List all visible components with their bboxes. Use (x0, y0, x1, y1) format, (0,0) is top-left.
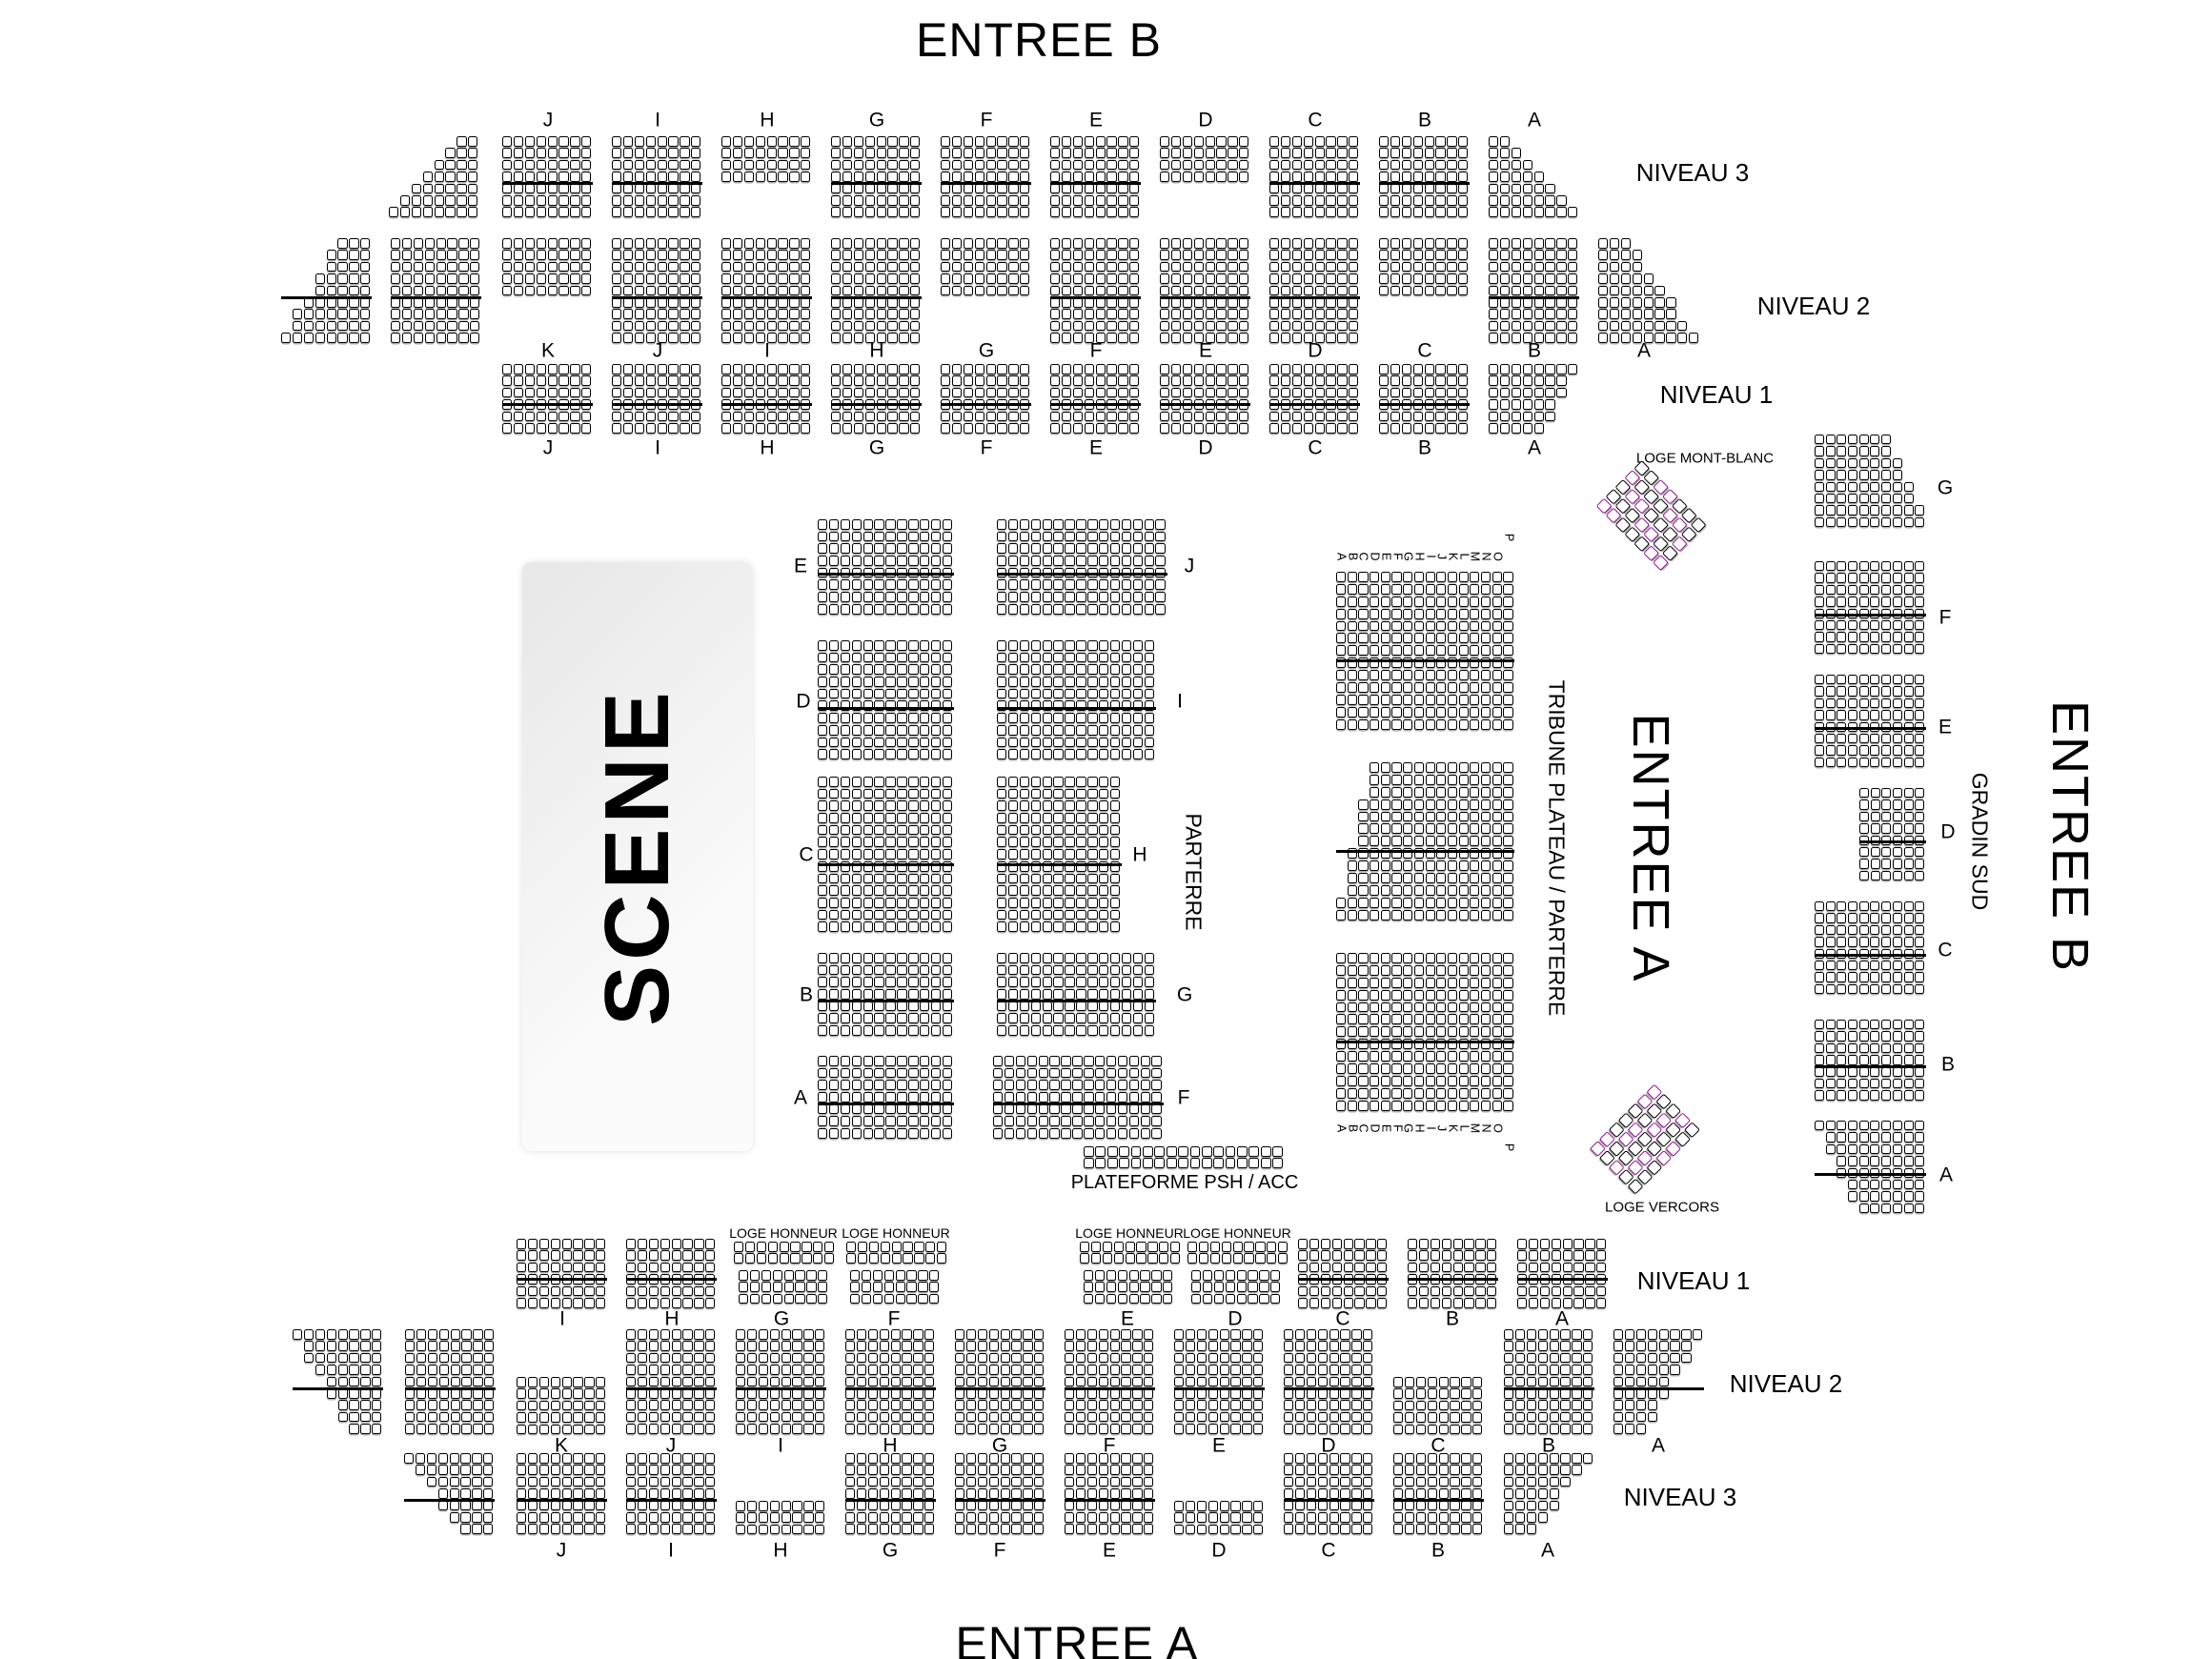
seat (1826, 1144, 1836, 1154)
seat (1065, 953, 1074, 963)
seat (877, 172, 886, 182)
seat (1426, 572, 1435, 582)
seat (1837, 1043, 1846, 1053)
seat (1556, 297, 1566, 308)
seat (721, 388, 731, 398)
seat (1870, 1079, 1879, 1088)
seat (1118, 195, 1127, 206)
seat (570, 172, 579, 182)
seat (581, 375, 591, 386)
seat-block-niveau1-bottom-D (1191, 1270, 1282, 1305)
seat (1654, 286, 1664, 296)
seat (1315, 321, 1325, 332)
seat (1248, 1158, 1259, 1168)
seat (1122, 738, 1131, 748)
seat (1133, 738, 1143, 748)
seat (784, 1294, 794, 1305)
seat (646, 412, 656, 422)
seat (1654, 333, 1664, 343)
seat (1336, 1014, 1346, 1024)
seat (778, 375, 787, 386)
seat (1337, 262, 1347, 273)
seat (1370, 873, 1379, 883)
seat (1106, 172, 1116, 182)
seat (1053, 965, 1063, 976)
seat (502, 273, 512, 284)
seat (1106, 333, 1116, 343)
seat (1194, 160, 1204, 171)
seat (1321, 1250, 1330, 1261)
seat (425, 250, 435, 260)
seat (612, 250, 621, 260)
seat (423, 207, 433, 217)
seat (1391, 584, 1401, 595)
seat (1904, 1156, 1914, 1165)
seat (1031, 825, 1041, 836)
seat (1512, 184, 1521, 194)
seat (1053, 921, 1063, 932)
seat (473, 1341, 482, 1351)
seat (1523, 412, 1532, 422)
seat (1815, 675, 1824, 684)
seat (646, 207, 656, 217)
seat (646, 160, 656, 171)
seat (908, 664, 918, 675)
seat (635, 412, 644, 422)
seat (1503, 1014, 1512, 1024)
seat (1414, 885, 1424, 896)
seat (584, 1250, 594, 1261)
seat (1239, 309, 1248, 319)
seat (841, 849, 850, 860)
seat-block-niveau1-top-E (1050, 364, 1141, 435)
seat (1228, 423, 1237, 434)
seat (573, 1250, 582, 1261)
seat (1216, 262, 1226, 273)
seat (842, 273, 852, 284)
seat (1837, 758, 1846, 767)
seat (1031, 800, 1041, 811)
seat (1481, 597, 1491, 607)
seat (1062, 195, 1071, 206)
seat (1073, 136, 1083, 147)
seat (931, 977, 941, 987)
seat (1065, 825, 1074, 836)
seat (623, 262, 633, 273)
seat-block-loge-mont-blanc (1596, 459, 1710, 573)
seat (1050, 262, 1060, 273)
seat (874, 543, 883, 554)
seat (1191, 1282, 1201, 1292)
seat (1095, 1158, 1106, 1168)
seat (1370, 670, 1379, 680)
seat (1110, 1025, 1120, 1036)
seat (1870, 505, 1879, 515)
seat (1020, 849, 1029, 860)
seat (1062, 172, 1071, 182)
seat (899, 333, 908, 343)
seat (1408, 1250, 1417, 1261)
seat (1348, 609, 1357, 619)
block-label-parterre-right-J: J (1185, 556, 1195, 577)
seat (1043, 813, 1052, 823)
seat (1281, 207, 1290, 217)
seat (668, 364, 678, 374)
seat (1213, 1158, 1224, 1168)
seat (997, 273, 1006, 284)
seat (818, 640, 827, 651)
seat (918, 1282, 927, 1292)
seat (874, 989, 883, 1000)
seat (1031, 556, 1041, 566)
seat (1915, 734, 1924, 743)
seat (877, 309, 886, 319)
seat (1087, 874, 1097, 884)
seat (920, 800, 929, 811)
seat (1390, 250, 1400, 260)
seat (778, 333, 787, 343)
seat (997, 1025, 1006, 1036)
seat (548, 238, 558, 249)
seat (1837, 710, 1846, 719)
seat (1848, 561, 1857, 571)
seat (874, 874, 883, 884)
seat (877, 238, 886, 249)
seat (1402, 148, 1411, 158)
seat (1492, 910, 1502, 921)
seat-block-gradin-sud-D (1859, 788, 1926, 882)
seat (920, 977, 929, 987)
seat (1470, 1051, 1479, 1062)
block-label-niveau3-top-C: C (1308, 111, 1322, 131)
seat (1062, 333, 1071, 343)
seat (1489, 309, 1498, 319)
seat (1500, 172, 1510, 182)
seat (1492, 812, 1502, 822)
seat (1269, 262, 1279, 273)
seat (1426, 953, 1435, 963)
seat (447, 250, 457, 260)
seat (1326, 297, 1335, 308)
seat (558, 250, 568, 260)
seat (548, 207, 558, 217)
seat (517, 1263, 526, 1273)
seat (997, 172, 1006, 182)
seat (1194, 309, 1204, 319)
seat-block-niveau1-top-D (1160, 364, 1250, 435)
seat (1354, 1239, 1364, 1249)
seat (863, 700, 873, 711)
seat (1348, 707, 1357, 718)
seat (1512, 309, 1521, 319)
seat (436, 273, 446, 284)
seat (908, 689, 918, 699)
seat (451, 1412, 460, 1423)
seat (682, 1263, 692, 1273)
seat (1381, 799, 1390, 810)
seat (897, 813, 906, 823)
seat (910, 207, 920, 217)
seat (1403, 787, 1412, 798)
seat (1826, 1079, 1836, 1088)
seat (1904, 1204, 1914, 1213)
seat (1915, 1055, 1924, 1064)
seat (841, 1001, 850, 1012)
seat (1085, 297, 1094, 308)
seat (1073, 412, 1083, 422)
seat (1915, 937, 1924, 946)
seat (1540, 1263, 1550, 1273)
seat-block-loge-vercors (1589, 1084, 1702, 1198)
seat (691, 388, 700, 398)
seat (691, 148, 700, 158)
block-label-niveau1-top-J: J (543, 438, 554, 458)
seat (1216, 423, 1226, 434)
niveau-3-bottom-label: NIVEAU 3 (1624, 1485, 1737, 1509)
seat (1915, 561, 1924, 571)
seat (997, 777, 1006, 787)
seat (1370, 799, 1379, 810)
seat (1556, 273, 1566, 284)
seat (997, 953, 1006, 963)
seat (1087, 921, 1097, 932)
seat (461, 1424, 471, 1434)
seat-block-niveau1-bottom-H (626, 1239, 717, 1309)
seat (854, 297, 863, 308)
seat (1503, 1076, 1512, 1086)
block-label-niveau2-top-E: E (1199, 341, 1212, 361)
seat (1403, 1002, 1412, 1013)
seat (1031, 677, 1041, 687)
seat (1370, 1002, 1379, 1013)
seat (789, 412, 799, 422)
seat (1194, 148, 1204, 158)
seat (1837, 1067, 1846, 1077)
seat (964, 412, 973, 422)
seat (414, 273, 423, 284)
seat (1020, 874, 1029, 884)
seat (920, 910, 929, 921)
seat (1214, 1282, 1224, 1292)
seat (1837, 470, 1846, 479)
seat (461, 1412, 471, 1423)
seat (1269, 321, 1279, 332)
seat (920, 640, 929, 651)
seat (920, 1128, 929, 1139)
seat (1228, 273, 1237, 284)
seat (1390, 423, 1400, 434)
seat (829, 1116, 839, 1126)
seat (1881, 1055, 1891, 1064)
seat (841, 604, 850, 615)
seat (873, 1270, 883, 1281)
seat (778, 250, 787, 260)
seat (1815, 698, 1824, 708)
seat (539, 1250, 549, 1261)
seat (457, 184, 466, 194)
seat (1448, 1088, 1457, 1099)
block-label-parterre-right-H: H (1132, 845, 1147, 865)
seat (943, 1056, 952, 1066)
seat (1523, 172, 1532, 182)
seat (1529, 1250, 1538, 1261)
seat (1366, 1286, 1375, 1297)
seat (548, 412, 558, 422)
seat (899, 423, 908, 434)
seat (818, 519, 827, 530)
block-label-niveau3-top-I: I (655, 111, 660, 131)
seat (1481, 1002, 1491, 1013)
seat (1076, 898, 1086, 908)
seat (1194, 136, 1204, 147)
seat (660, 1298, 670, 1308)
seat (931, 543, 941, 554)
seat (1426, 621, 1435, 632)
seat (908, 1116, 918, 1126)
seat (1008, 532, 1018, 542)
seat (1470, 609, 1479, 619)
seat (537, 238, 546, 249)
seat (874, 532, 883, 542)
seat (931, 777, 941, 787)
seat (391, 297, 400, 308)
seat (943, 532, 952, 542)
seat (1826, 758, 1836, 767)
seat (842, 412, 852, 422)
seat (646, 184, 656, 194)
seat (658, 375, 667, 386)
seat (1337, 136, 1347, 147)
seat (842, 238, 852, 249)
seat (1337, 333, 1347, 343)
block-label-parterre-right-I: I (1177, 692, 1183, 712)
seat (1826, 1132, 1836, 1142)
seat (1492, 1063, 1502, 1074)
seat (789, 375, 799, 386)
seat (997, 136, 1006, 147)
seat-block-niveau2-top-G (941, 238, 1031, 297)
seat (461, 1341, 471, 1351)
seat (447, 309, 457, 319)
seat (1426, 898, 1435, 908)
seat (304, 1341, 314, 1351)
seat (1326, 375, 1335, 386)
seat (920, 677, 929, 687)
seat (1426, 1101, 1435, 1111)
seat (975, 195, 984, 206)
seat (338, 1412, 348, 1423)
seat (841, 885, 850, 896)
seat (997, 713, 1006, 723)
seat (818, 1270, 827, 1281)
seat (1099, 898, 1108, 908)
seat (612, 364, 621, 374)
seat (1358, 1101, 1368, 1111)
seat (1194, 286, 1204, 296)
seat (1072, 1128, 1082, 1139)
seat (1870, 597, 1879, 606)
seat (1110, 849, 1120, 860)
seat (1470, 812, 1479, 822)
seat (1087, 989, 1097, 1000)
seat (1893, 1090, 1902, 1100)
seat (1837, 482, 1846, 492)
seat (1031, 953, 1041, 963)
seat (1065, 874, 1074, 884)
seat (1370, 1076, 1379, 1086)
seat (1326, 333, 1335, 343)
seat (1573, 1239, 1583, 1249)
seat (1500, 207, 1510, 217)
seat (852, 921, 862, 932)
seat (931, 1116, 941, 1126)
seat (1053, 789, 1063, 799)
seat (1155, 543, 1165, 554)
seat (1870, 937, 1879, 946)
seat (733, 273, 742, 284)
seat (897, 777, 906, 787)
seat (1381, 695, 1390, 705)
seat (1436, 695, 1446, 705)
seat (1348, 1088, 1357, 1099)
seat (778, 262, 787, 273)
seat (1031, 664, 1041, 675)
seat (360, 1353, 370, 1364)
seat (1118, 286, 1127, 296)
seat (1171, 309, 1181, 319)
seat (1458, 160, 1468, 171)
seat (1309, 1263, 1319, 1273)
seat (1870, 984, 1879, 994)
seat (852, 1068, 862, 1079)
seat (852, 885, 862, 896)
seat (863, 921, 873, 932)
seat (327, 1329, 336, 1340)
seat (818, 789, 827, 799)
seat (1145, 738, 1154, 748)
seat (1008, 689, 1018, 699)
seat (349, 321, 358, 332)
seat (1379, 160, 1389, 171)
seat (1596, 1250, 1606, 1261)
seat (1621, 297, 1631, 308)
seat (1370, 885, 1379, 896)
seat (941, 136, 950, 147)
seat (1237, 1282, 1247, 1292)
seat (1370, 633, 1379, 643)
seat (1859, 710, 1869, 719)
seat (1408, 1239, 1417, 1249)
seat (920, 837, 929, 847)
seat (1008, 388, 1018, 398)
seat (1008, 910, 1018, 921)
seat (1099, 789, 1108, 799)
seat (1391, 990, 1401, 1001)
seat (1915, 1144, 1924, 1154)
seat (997, 160, 1006, 171)
seat (1459, 572, 1469, 582)
seat (680, 273, 689, 284)
seat (1237, 1146, 1248, 1157)
seat (680, 148, 689, 158)
seat (680, 172, 689, 182)
seat (778, 309, 787, 319)
seat (1512, 160, 1521, 171)
seat (897, 1092, 906, 1103)
seat (1085, 136, 1094, 147)
seat (931, 1001, 941, 1012)
seat (744, 375, 754, 386)
